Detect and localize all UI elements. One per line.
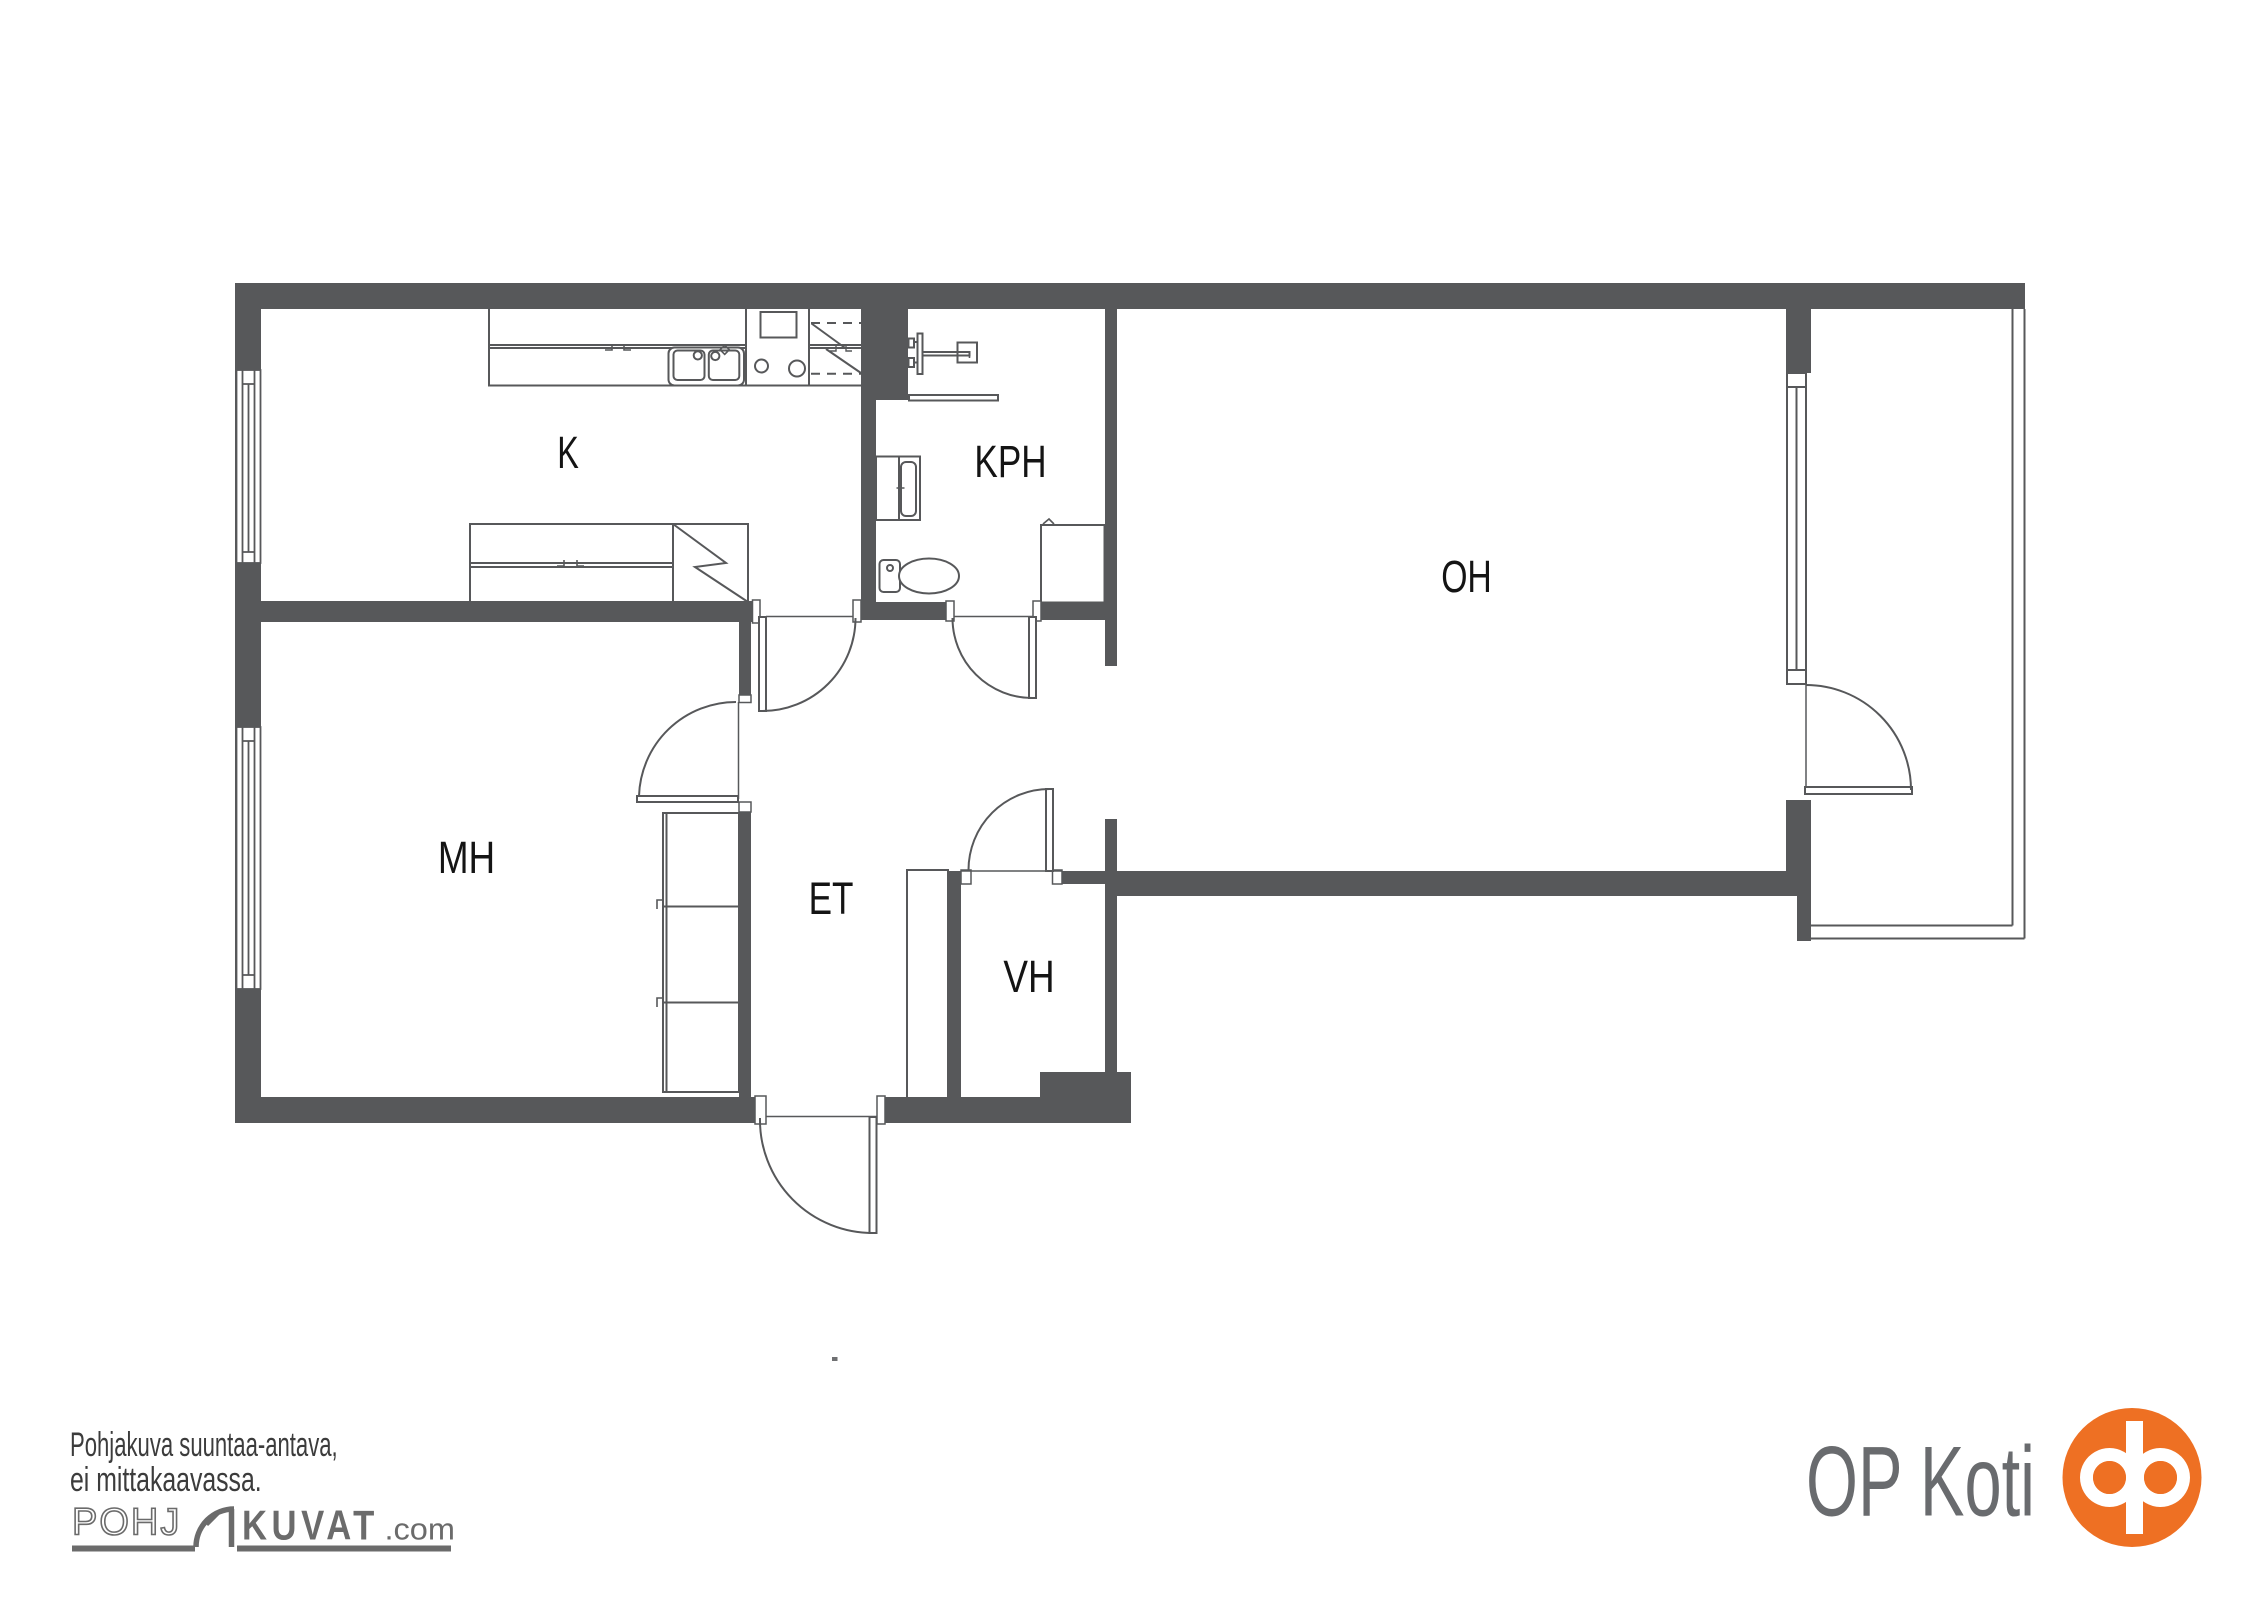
svg-text:KUVAT: KUVAT: [242, 1502, 379, 1549]
svg-text:MH: MH: [438, 833, 495, 883]
svg-text:K: K: [557, 429, 579, 478]
svg-text:KPH: KPH: [974, 436, 1046, 487]
svg-text:VH: VH: [1003, 952, 1054, 1002]
svg-text:.com: .com: [385, 1511, 456, 1546]
svg-text:OH: OH: [1441, 552, 1492, 602]
svg-text:POHJ: POHJ: [72, 1502, 181, 1544]
svg-text:ei mittakaavassa.: ei mittakaavassa.: [70, 1461, 262, 1499]
svg-text:Pohjakuva suuntaa-antava,: Pohjakuva suuntaa-antava,: [70, 1426, 338, 1464]
svg-text:ET: ET: [809, 873, 854, 924]
svg-text:OP Koti: OP Koti: [1806, 1427, 2035, 1537]
